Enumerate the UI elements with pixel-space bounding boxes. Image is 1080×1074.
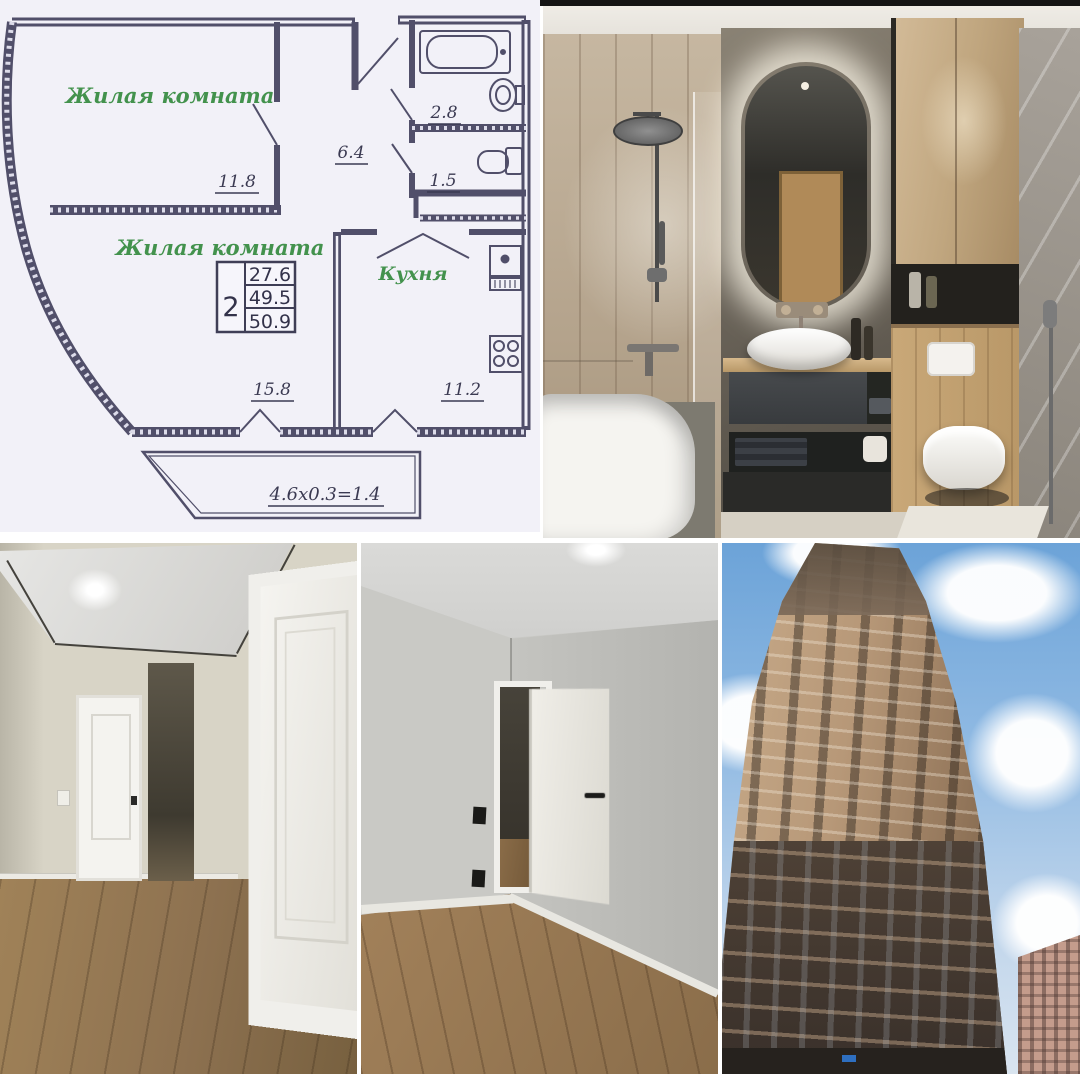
faucet-knob-left [781, 305, 791, 315]
foreground-door [249, 561, 357, 1039]
counter-bottle-1 [851, 318, 861, 360]
area-value: 49.5 [249, 287, 291, 309]
wall-hung-toilet [923, 426, 1005, 490]
total-area-value: 50.9 [249, 311, 291, 333]
floor-tile-highlight [897, 506, 1049, 538]
wall-socket-1 [473, 807, 487, 825]
hand-shower [659, 221, 665, 265]
bath-area: 2.8 [429, 103, 457, 123]
balcony-dimension: 4.6x0.3=1.4 [268, 484, 380, 505]
hall-area: 6.4 [337, 143, 364, 163]
door-handle [131, 796, 137, 805]
listing-collage: 2 27.6 49.5 50.9 Жилая комната Жилая ком… [0, 0, 1080, 1074]
photo-empty-room [361, 543, 718, 1074]
tower-lower-window-glints [722, 841, 1022, 1074]
dark-doorway-opening [148, 663, 194, 881]
vessel-sink [747, 328, 851, 370]
niche-bottle-1 [909, 272, 921, 308]
shower-mixer [647, 268, 667, 282]
photo-bathroom [543, 6, 1080, 538]
photo-building [722, 543, 1080, 1074]
street-level [722, 1048, 1022, 1074]
tub-faucet-bar [627, 344, 679, 352]
cabinet-highlight [921, 56, 1007, 186]
mirror-reflection-light [801, 82, 809, 90]
tub-faucet-body [645, 352, 653, 376]
open-door [529, 685, 609, 904]
flush-plate [927, 342, 975, 376]
faucet-knob-right [813, 305, 823, 315]
toilet-paper-roll [863, 436, 887, 462]
room1-label: Жилая комната [64, 83, 275, 108]
photo-hallway [0, 543, 357, 1074]
ceiling-spot-light [566, 543, 626, 567]
vanity-drawer [729, 372, 867, 424]
open-door-edge [529, 689, 532, 901]
closed-white-door [76, 695, 142, 881]
mirror-reflection-door [779, 171, 843, 306]
toilet-shadow [925, 488, 1009, 508]
living-area-value: 27.6 [249, 264, 291, 286]
kitchen-area: 11.2 [443, 380, 481, 400]
bathtub [543, 394, 695, 538]
open-door-handle [585, 793, 605, 798]
wall-socket-2 [472, 870, 486, 888]
hand-shower-bar [1049, 306, 1053, 524]
shelf-towel [869, 398, 891, 414]
floor-plan: 2 27.6 49.5 50.9 Жилая комната Жилая ком… [0, 0, 540, 532]
rooms-count: 2 [222, 292, 239, 323]
folded-towels [735, 438, 807, 466]
ceiling-spot-light [68, 569, 122, 611]
oval-mirror [745, 66, 867, 306]
cabinet-door-seam [955, 18, 957, 264]
storefront-sign [842, 1055, 856, 1062]
apartment-info-table: 2 27.6 49.5 50.9 [217, 262, 295, 333]
rain-shower-head [613, 116, 683, 146]
neighbor-building [1018, 935, 1080, 1074]
room2-area: 15.8 [253, 380, 291, 400]
floor-plan-drawing: 2 27.6 49.5 50.9 Жилая комната Жилая ком… [0, 0, 540, 532]
counter-bottle-2 [864, 326, 873, 360]
light-switch [57, 790, 70, 806]
hand-shower-head [1043, 300, 1057, 328]
wc-area: 1.5 [429, 171, 456, 191]
foreground-door-panel-inner [285, 627, 336, 923]
room1-area: 11.8 [218, 172, 256, 192]
niche-bottle-2 [926, 276, 937, 308]
room2-label: Жилая комната [114, 235, 325, 260]
door-panel-molding [91, 714, 131, 840]
kitchen-label: Кухня [378, 263, 448, 285]
